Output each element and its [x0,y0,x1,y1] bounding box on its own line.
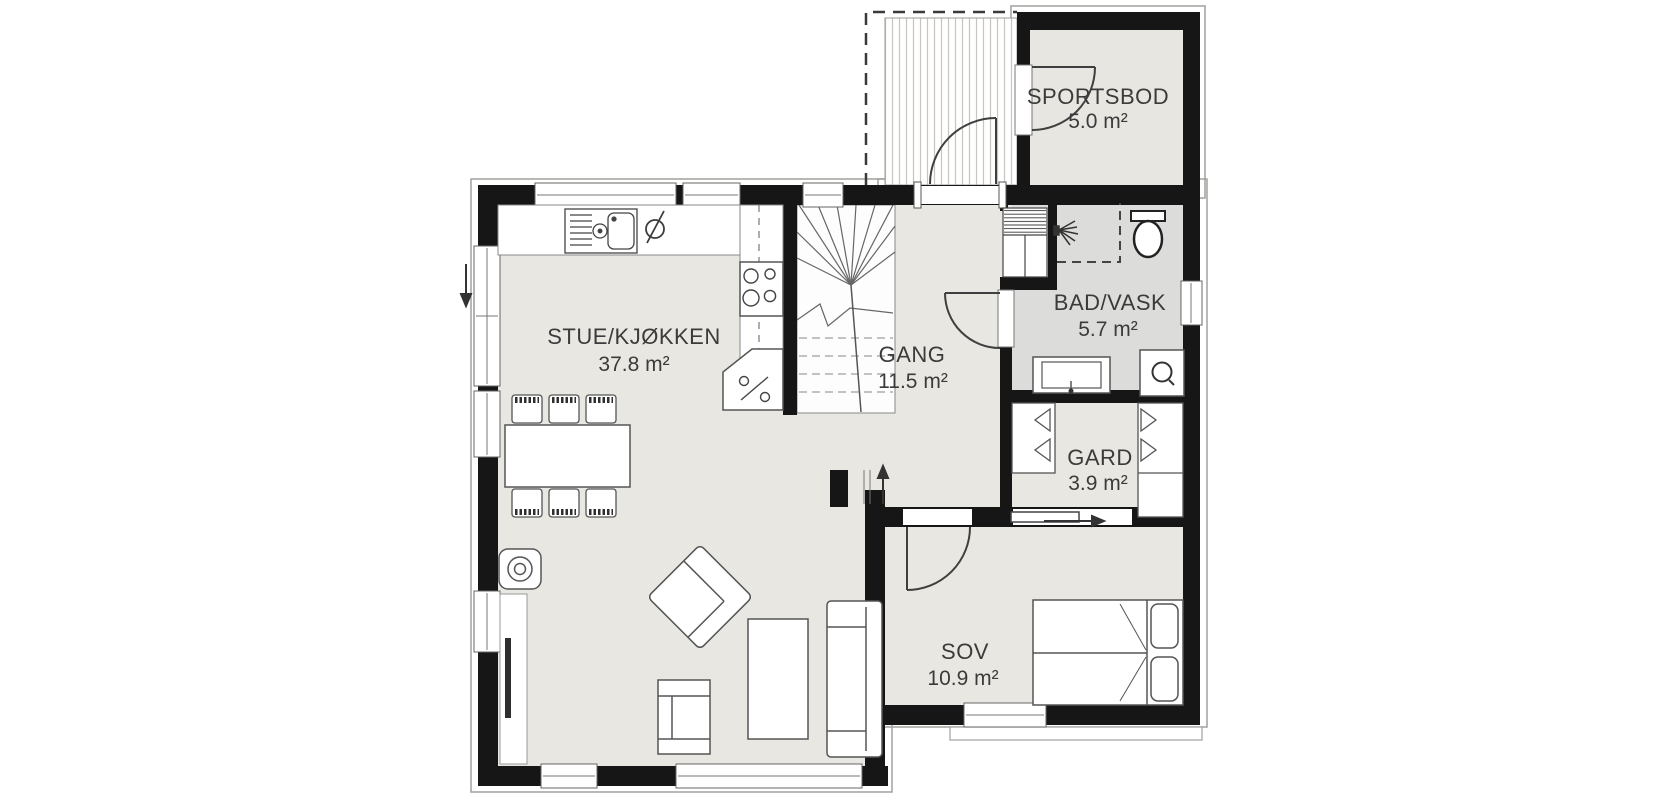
floor-plan-page: STUE/KJØKKEN 37.8 m² GANG 11.5 m² BAD/VA… [0,0,1670,800]
dining-chairs-bottom [512,489,616,517]
closet-left [1012,403,1055,473]
label-hall-name: GANG [879,342,946,367]
label-storage-name: SPORTSBOD [1027,84,1169,109]
wall-nook-bottom [1000,277,1057,290]
pillow [1151,604,1178,648]
label-bedroom-area: 10.9 m² [927,667,998,690]
wall-stub-living [830,470,848,507]
dining-set [505,395,630,517]
lounge-chair [658,680,710,754]
label-wardrobe-area: 3.9 m² [1068,472,1128,495]
toilet [1131,211,1165,257]
bedroom-door-opening [903,509,972,525]
entrance-opening [918,186,1002,204]
dining-chairs-top [512,395,616,423]
pillow [1151,657,1178,701]
label-wardrobe-name: GARD [1067,445,1133,470]
wall-nook-right [1048,197,1057,277]
label-bath-name: BAD/VASK [1054,290,1166,315]
bathroom-door-opening [998,290,1014,347]
vanity-sink [1033,357,1110,394]
label-hall-area: 11.5 m² [878,370,948,393]
label-living-name: STUE/KJØKKEN [547,324,720,349]
bedroom-furniture [1033,600,1183,705]
wall-wardrobe-left [1000,403,1012,507]
coffee-table [748,619,808,739]
tv-bench [500,594,527,764]
washing-machine [1140,350,1184,396]
wall-storage-top [1017,12,1198,30]
label-bedroom-name: SOV [941,639,989,664]
dining-table [505,425,630,487]
arrow-down-left-wall [461,264,471,306]
wall-right [1183,185,1200,725]
label-storage-area: 5.0 m² [1068,110,1128,133]
tv [505,638,511,718]
tech-cabinet [1003,208,1047,277]
terrace-step [950,727,1202,740]
entry-porch [866,12,1017,185]
wall-storage-right [1183,12,1200,185]
wood-stove [499,549,541,589]
cooktop [740,262,783,316]
closet-right [1138,403,1183,517]
sofa [827,601,882,757]
label-bath-area: 5.7 m² [1078,318,1138,341]
double-bed [1033,600,1183,705]
label-living-area: 37.8 m² [598,353,669,376]
entry-porch-decking [885,18,1017,185]
floor-plan: STUE/KJØKKEN 37.8 m² GANG 11.5 m² BAD/VA… [0,0,1670,800]
wall-kitchen-stair [783,197,797,415]
